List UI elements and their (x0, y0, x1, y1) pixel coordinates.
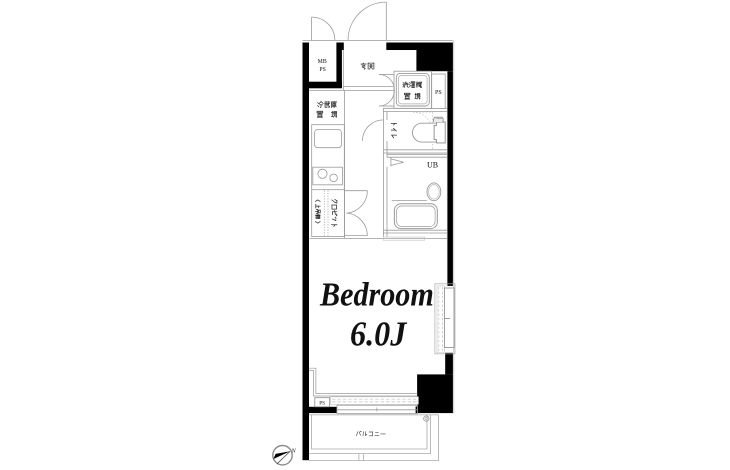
svg-text:MB: MB (318, 59, 327, 65)
svg-text:N: N (290, 448, 296, 455)
svg-text:6.0J: 6.0J (350, 315, 407, 354)
svg-text:PS: PS (319, 67, 325, 73)
svg-text:PS: PS (435, 90, 442, 96)
svg-text:Bedroom: Bedroom (319, 276, 434, 313)
svg-text:UB: UB (427, 161, 438, 170)
svg-text:PS: PS (319, 400, 325, 406)
